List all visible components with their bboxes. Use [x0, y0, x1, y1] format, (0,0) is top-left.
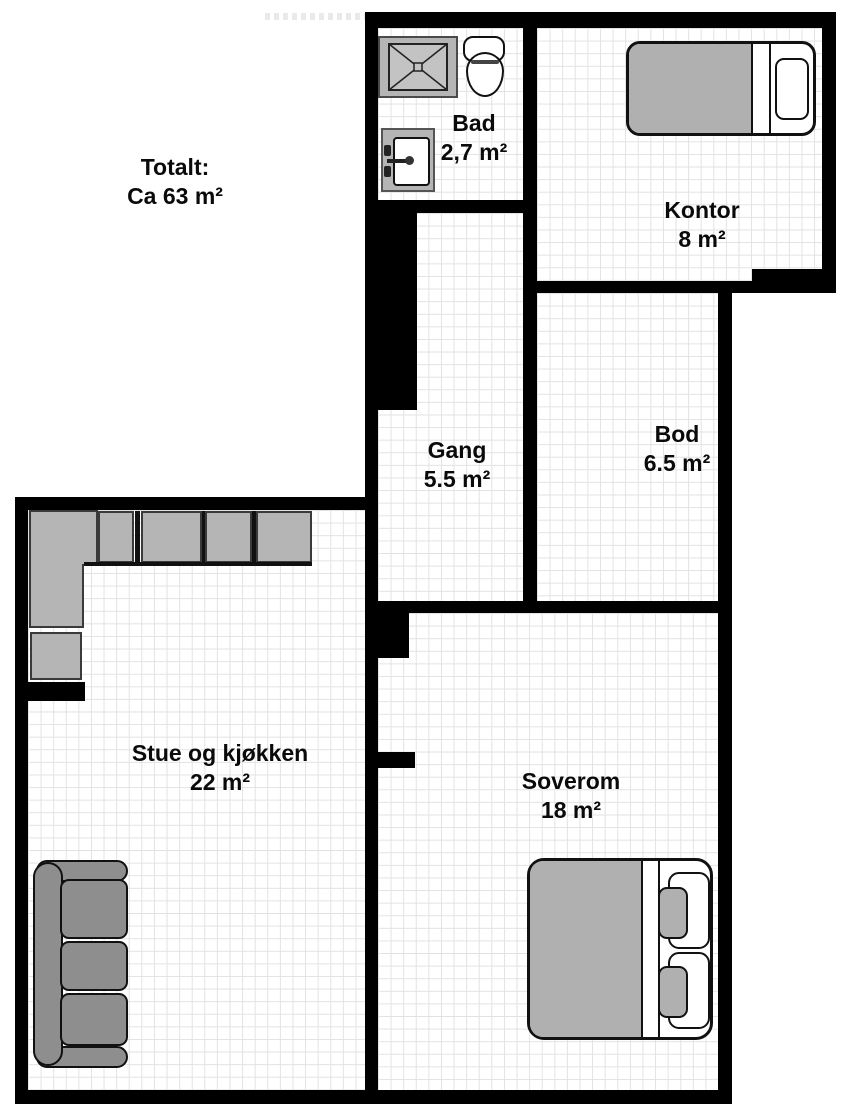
shower-icon: [378, 36, 458, 98]
total-area-label: Totalt: Ca 63 m²: [127, 153, 223, 211]
kitchen-cabinet-icon: [98, 511, 134, 563]
room-area: 8 m²: [664, 225, 739, 254]
wall: [822, 12, 836, 293]
door-stub: [378, 752, 415, 768]
wall: [15, 497, 378, 510]
total-label: Totalt:: [127, 153, 223, 182]
door-stub: [378, 613, 409, 658]
toilet-seat-line: [471, 60, 499, 64]
double-bed-pillow: [658, 966, 688, 1018]
room-area: 18 m²: [522, 796, 620, 825]
wall: [523, 293, 537, 613]
kitchen-cabinet-icon: [256, 511, 312, 563]
single-bed-line: [769, 44, 771, 133]
room-label-kontor: Kontor 8 m²: [664, 196, 739, 254]
room-name: Bod: [644, 420, 710, 449]
wall: [523, 12, 836, 28]
wall: [365, 601, 732, 613]
kitchen-cabinet-icon: [141, 511, 202, 563]
counter-edge: [84, 562, 312, 566]
kitchen-appliance-icon: [30, 632, 82, 680]
single-bed-duvet: [629, 44, 753, 133]
wall: [15, 497, 28, 1104]
room-name: Kontor: [664, 196, 739, 225]
chimney-stub: [28, 682, 85, 701]
wall: [365, 200, 417, 410]
room-label-soverom: Soverom 18 m²: [522, 767, 620, 825]
cabinet-divider: [135, 511, 140, 563]
total-value: Ca 63 m²: [127, 182, 223, 211]
watermark: [265, 13, 377, 20]
sofa-cushion: [60, 879, 128, 939]
room-label-gang: Gang 5.5 m²: [424, 436, 490, 494]
wall: [365, 12, 378, 213]
sink-icon: [381, 128, 435, 192]
sofa-cushion: [60, 941, 128, 991]
double-bed-pillow: [658, 887, 688, 939]
wall: [365, 410, 378, 1104]
kitchen-counter-corner-icon: [82, 510, 98, 566]
kitchen-cabinet-icon: [205, 511, 252, 563]
wall: [718, 281, 732, 1104]
sofa-cushion: [60, 993, 128, 1046]
room-label-bod: Bod 6.5 m²: [644, 420, 710, 478]
room-name: Stue og kjøkken: [132, 739, 308, 768]
room-area: 5.5 m²: [424, 465, 490, 494]
room-area: 22 m²: [132, 768, 308, 797]
room-label-stue: Stue og kjøkken 22 m²: [132, 739, 308, 797]
wall: [523, 12, 537, 293]
sofa-backrest: [33, 862, 63, 1066]
room-area: 6.5 m²: [644, 449, 710, 478]
wall: [15, 1090, 732, 1104]
double-bed-duvet: [530, 861, 643, 1037]
room-name: Gang: [424, 436, 490, 465]
room-name: Bad: [441, 109, 507, 138]
wall: [365, 12, 537, 28]
kitchen-counter-icon: [29, 510, 84, 628]
single-bed-pillow: [775, 58, 809, 120]
room-area: 2,7 m²: [441, 138, 507, 167]
room-label-bad: Bad 2,7 m²: [441, 109, 507, 167]
floor-plan: Totalt: Ca 63 m² Bad 2,7 m² Kontor 8 m² …: [0, 0, 849, 1114]
room-name: Soverom: [522, 767, 620, 796]
wall: [752, 269, 836, 293]
